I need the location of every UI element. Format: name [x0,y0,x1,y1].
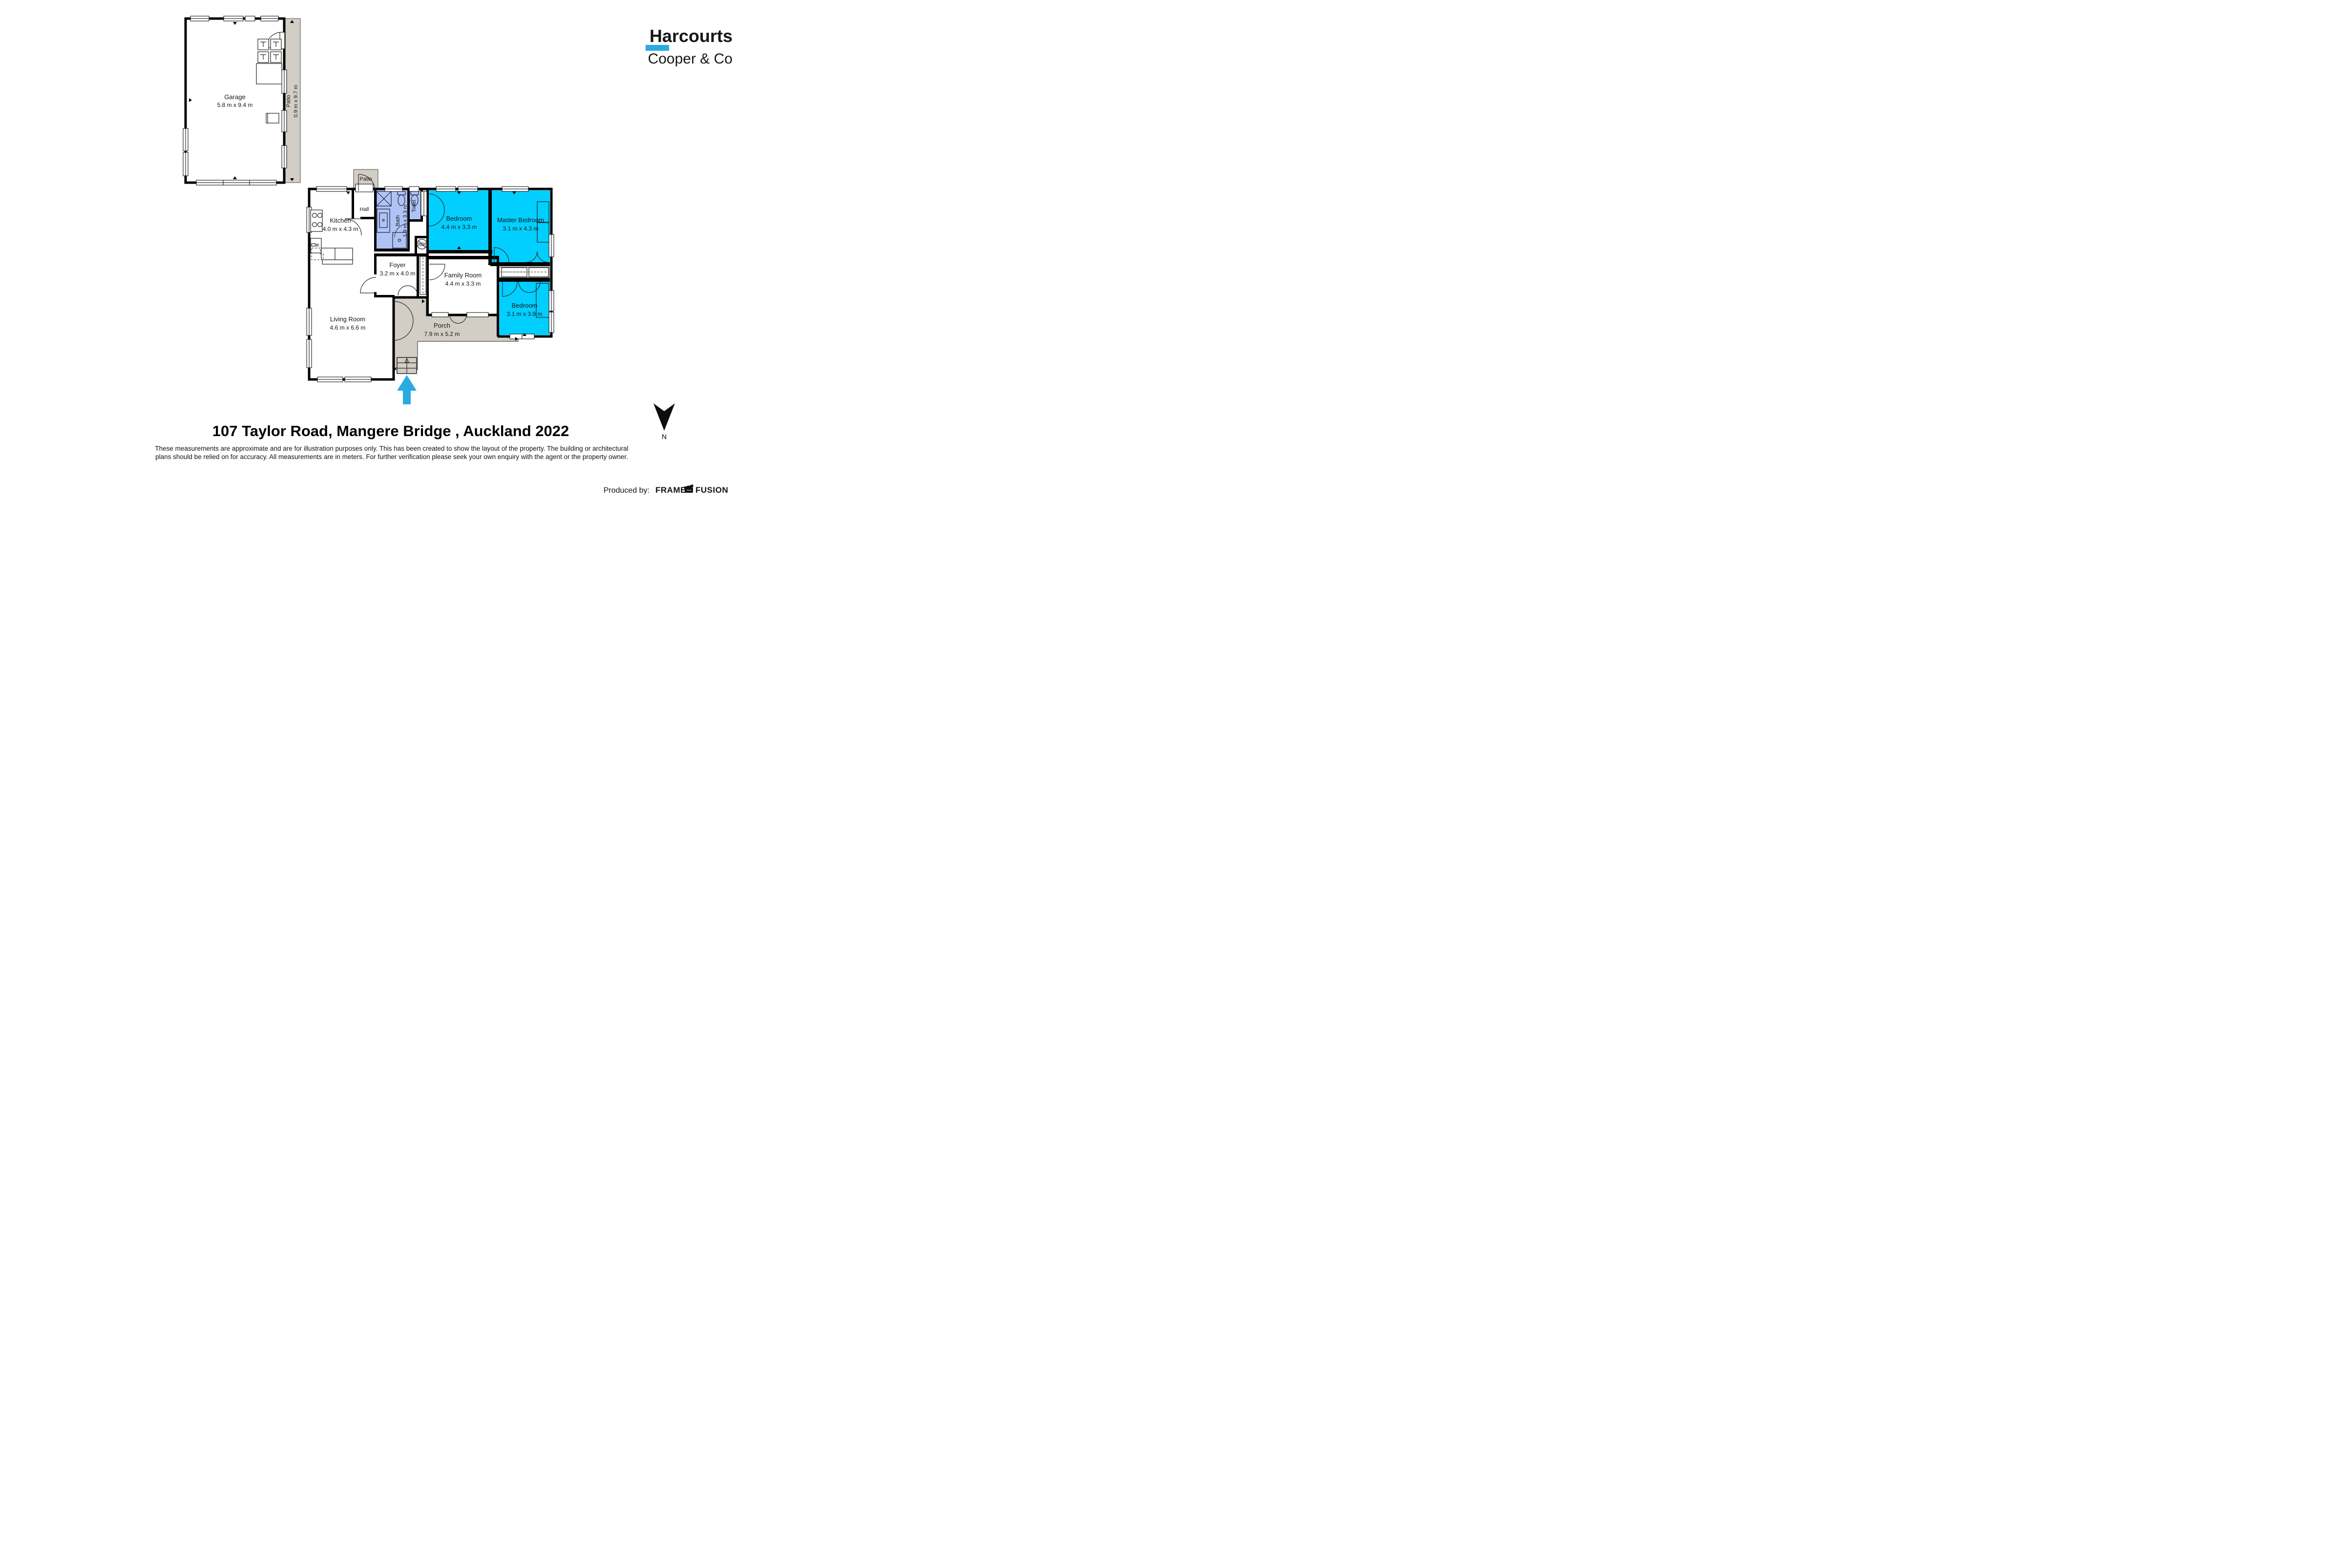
master-dims: 3.1 m x 4.3 m [503,225,539,232]
disclaimer-line1: These measurements are approximate and a… [155,445,628,452]
credits-block: Produced by: FRAME FUSION [604,484,729,495]
bedroom1-label: Bedroom [446,215,472,222]
main-house: Patio Hall Kitchen 4.0 m x 4.3 m Bath 1.… [307,169,554,404]
north-arrow-icon [653,403,675,431]
garage-building: Garage 5.8 m x 9.4 m Patio 0.9 m x 9.7 m [183,16,300,185]
kitchen-label: Kitchen [330,217,351,224]
kitchen-counter [321,248,353,260]
utility-label: Utility [416,242,429,248]
harcourts-logo: Harcourts Cooper & Co [646,26,733,67]
page-title: 107 Taylor Road, Mangere Bridge , Auckla… [212,422,569,439]
living-label: Living Room [330,315,365,323]
family-label: Family Room [444,272,482,279]
toilet-label: Toilet [411,200,417,212]
family-dims: 4.4 m x 3.3 m [445,280,481,287]
cooper-co-wordmark: Cooper & Co [648,51,733,67]
harcourts-wordmark: Harcourts [650,26,733,46]
foyer-label: Foyer [389,261,406,269]
north-compass: N [653,403,675,440]
producer-word1: FRAME [655,485,686,495]
north-label: N [662,433,667,440]
logo-underline-bar [646,45,669,51]
kitchen-dims: 4.0 m x 4.3 m [323,226,358,232]
bath-label: Bath [395,215,401,227]
foyer-dims: 3.2 m x 4.0 m [380,270,416,277]
entry-direction-arrow [397,375,417,404]
kitchen-sink [311,238,321,253]
patio-label: Patio [359,176,372,182]
garage-room [186,19,284,183]
garage-label: Garage [224,93,245,101]
produced-by-label: Produced by: [604,486,650,495]
hall-label: Hall [360,207,369,212]
master-label: Master Bedroom [497,216,544,224]
producer-word2: FUSION [695,485,728,495]
entry-steps [397,357,417,374]
garage-dims: 5.8 m x 9.4 m [217,102,253,108]
garage-patio-dims: 0.9 m x 9.7 m [293,85,299,118]
living-dims: 4.6 m x 6.6 m [330,324,366,331]
bath-dims: 1.9 m x 3.3 m [402,205,408,237]
disclaimer-line2: plans should be relied on for accuracy. … [155,453,628,460]
bedroom2-dims: 3.1 m x 3.9 m [507,311,543,317]
bedroom2-label: Bedroom [512,302,538,309]
floorplan-canvas: Garage 5.8 m x 9.4 m Patio 0.9 m x 9.7 m [0,0,755,503]
porch-dims: 7.9 m x 5.2 m [424,331,460,337]
bedroom1-dims: 4.4 m x 3.3 m [441,224,477,230]
porch-label: Porch [434,322,450,329]
garage-patio-label: Patio [286,95,292,107]
